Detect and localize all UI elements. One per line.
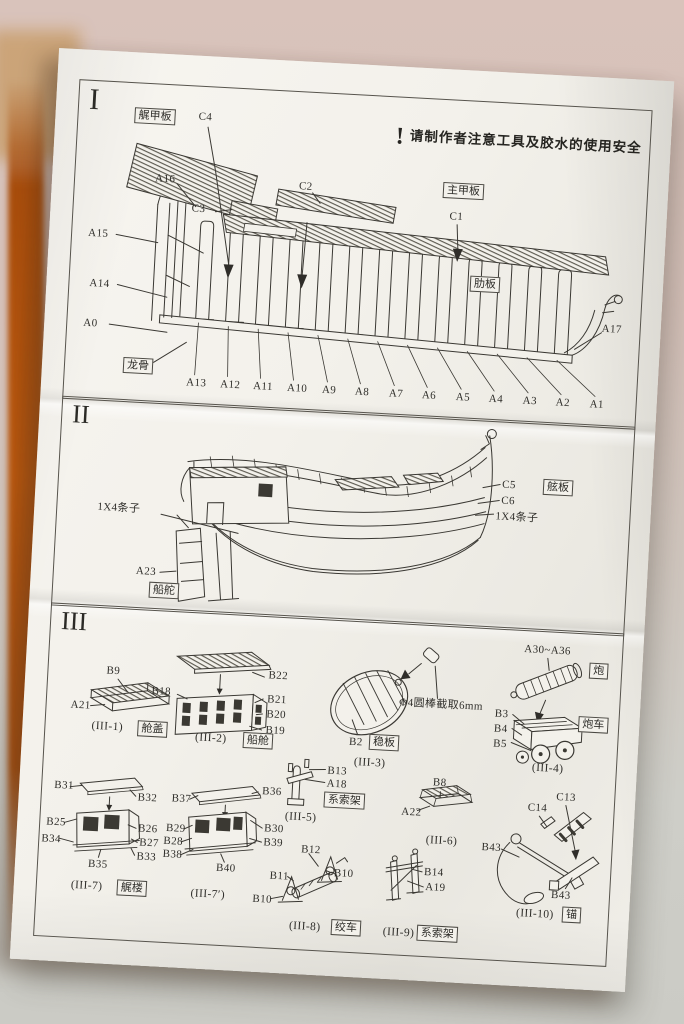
- caption-iii-8: (III-8): [289, 920, 321, 934]
- part-label-b12: B12: [301, 843, 321, 856]
- caption-iii-6: (III-6): [425, 834, 457, 848]
- boxed-label-winch: 绞车: [331, 919, 362, 937]
- boxed-label-stern-deck: 艉甲板: [134, 107, 176, 125]
- boxed-label-gun-carriage: 炮车: [578, 716, 609, 734]
- part-label-b26: B26: [138, 822, 158, 835]
- part-label-a14: A14: [89, 277, 110, 290]
- part-label-b36: B36: [262, 785, 282, 798]
- part-label-b29: B29: [166, 822, 186, 835]
- boxed-label-keel: 龙骨: [123, 357, 154, 375]
- rib-label-a11: A11: [253, 380, 273, 393]
- boxed-label-anchor: 锚: [562, 906, 582, 923]
- boxed-label-belaying-rack-2: 系索架: [416, 925, 458, 943]
- rib-label-a7: A7: [389, 387, 404, 400]
- section-ii-numeral: II: [72, 399, 91, 430]
- boxed-label-side-plank: 舷板: [543, 479, 574, 497]
- rib-label-a2: A2: [555, 396, 570, 409]
- caption-iii-9: (III-9): [382, 926, 414, 940]
- part-label-strips-left: 1X4条子: [97, 501, 141, 515]
- caption-iii-7: (III-7): [71, 879, 103, 893]
- part-label-b43-bottom: B43: [551, 889, 571, 902]
- part-label-a30-a36: A30~A36: [524, 643, 571, 658]
- section-i-frame-assembly: I ! 请制作者注意工具及胶水的使用安全 艉甲板 C4 A16 C3 C2 主甲…: [62, 79, 652, 430]
- boxed-label-cannon: 炮: [589, 663, 609, 680]
- part-label-a0: A0: [83, 317, 98, 330]
- caption-iii-3: (III-3): [354, 756, 386, 770]
- caption-iii-5: (III-5): [285, 810, 317, 824]
- part-label-c2: C2: [299, 180, 313, 193]
- boxed-label-rib-plate: 肋板: [470, 276, 501, 294]
- part-label-c4: C4: [198, 111, 212, 124]
- section-ii-hull-planking: II C5 舷板 C6 1X4条子 1X4条子 A23 船舵: [51, 396, 636, 637]
- frame-assembly-diagram: [63, 80, 651, 428]
- part-label-b33: B33: [136, 850, 156, 863]
- part-label-a15: A15: [88, 227, 109, 240]
- part-label-b5: B5: [493, 738, 507, 751]
- part-label-c1: C1: [449, 210, 463, 223]
- part-label-b21: B21: [267, 693, 287, 706]
- rib-label-a13: A13: [186, 376, 207, 389]
- caption-iii-4: (III-4): [532, 762, 564, 776]
- part-label-a19: A19: [425, 881, 446, 894]
- part-label-a18: A18: [326, 778, 347, 791]
- section-iii-numeral: III: [60, 606, 88, 637]
- part-label-b28: B28: [163, 835, 183, 848]
- part-label-b10-left: B10: [252, 893, 272, 906]
- rib-label-a12: A12: [220, 378, 241, 391]
- boxed-label-rudder: 船舵: [149, 582, 180, 600]
- part-label-b30: B30: [264, 822, 284, 835]
- part-label-b8: B8: [433, 776, 447, 789]
- part-label-b27: B27: [139, 837, 159, 850]
- part-label-b35: B35: [88, 858, 108, 871]
- rib-label-a9: A9: [322, 384, 337, 397]
- part-label-b2: B2: [349, 736, 363, 749]
- part-label-b9: B9: [106, 664, 120, 677]
- instruction-sheet-paper: I ! 请制作者注意工具及胶水的使用安全 艉甲板 C4 A16 C3 C2 主甲…: [10, 48, 674, 992]
- part-label-b37: B37: [171, 792, 191, 805]
- part-label-b32: B32: [137, 791, 157, 804]
- part-label-strips-right: 1X4条子: [495, 510, 539, 524]
- section-i-numeral: I: [88, 83, 100, 117]
- rib-label-a4: A4: [488, 393, 503, 406]
- part-label-a23: A23: [136, 565, 157, 578]
- rib-label-a3: A3: [522, 395, 537, 408]
- photographed-instruction-sheet: I ! 请制作者注意工具及胶水的使用安全 艉甲板 C4 A16 C3 C2 主甲…: [0, 0, 684, 1024]
- part-label-c5: C5: [502, 479, 516, 492]
- rib-label-a5: A5: [455, 391, 470, 404]
- caption-iii-10: (III-10): [516, 907, 554, 921]
- part-label-b22: B22: [268, 669, 288, 682]
- part-label-a17: A17: [601, 323, 622, 336]
- part-label-b4: B4: [494, 723, 508, 736]
- part-label-c13: C13: [556, 791, 576, 804]
- part-label-b18: B18: [151, 685, 171, 698]
- part-label-b38: B38: [162, 848, 182, 861]
- part-label-b3: B3: [494, 708, 508, 721]
- part-label-b11: B11: [269, 870, 289, 883]
- rib-label-a6: A6: [422, 389, 437, 402]
- part-label-b25: B25: [46, 815, 66, 828]
- boxed-label-main-deck: 主甲板: [443, 182, 485, 200]
- part-label-b13: B13: [327, 765, 347, 778]
- section-iii-fittings: III B9 A21 (III-1) 舱盖 B18 B22 B21 B20 B1…: [33, 602, 624, 967]
- part-label-b43-mid: B43: [481, 841, 501, 854]
- rib-label-a8: A8: [355, 386, 370, 399]
- caption-iii-1: (III-1): [91, 720, 123, 734]
- part-label-b40: B40: [216, 862, 236, 875]
- part-label-a22: A22: [401, 806, 422, 819]
- part-label-b20: B20: [266, 708, 286, 721]
- caption-iii-7-prime: (III-7′): [190, 887, 225, 901]
- rib-label-a1: A1: [589, 398, 604, 411]
- part-label-a16: A16: [155, 172, 176, 185]
- rib-label-a10: A10: [287, 382, 308, 395]
- exclamation-mark: !: [395, 125, 404, 147]
- boxed-label-hatch-cover: 舱盖: [137, 720, 168, 738]
- part-label-b34: B34: [41, 832, 61, 845]
- part-label-a21: A21: [70, 699, 91, 712]
- part-label-c3: C3: [191, 202, 205, 215]
- part-label-b10-right: B10: [334, 867, 354, 880]
- part-label-b39: B39: [263, 836, 283, 849]
- hull-planking-diagram: [52, 397, 634, 636]
- boxed-label-stern-castle: 艉楼: [116, 879, 147, 897]
- part-label-b31: B31: [54, 779, 74, 792]
- boxed-label-stabilizer-board: 稳板: [369, 734, 400, 752]
- boxed-label-cabin: 船舱: [243, 732, 274, 750]
- part-label-b14: B14: [424, 866, 444, 879]
- boxed-label-belaying-rack-1: 系索架: [323, 791, 365, 809]
- caption-iii-2: (III-2): [195, 731, 227, 745]
- part-label-c6: C6: [501, 495, 515, 508]
- part-label-c14: C14: [527, 801, 547, 814]
